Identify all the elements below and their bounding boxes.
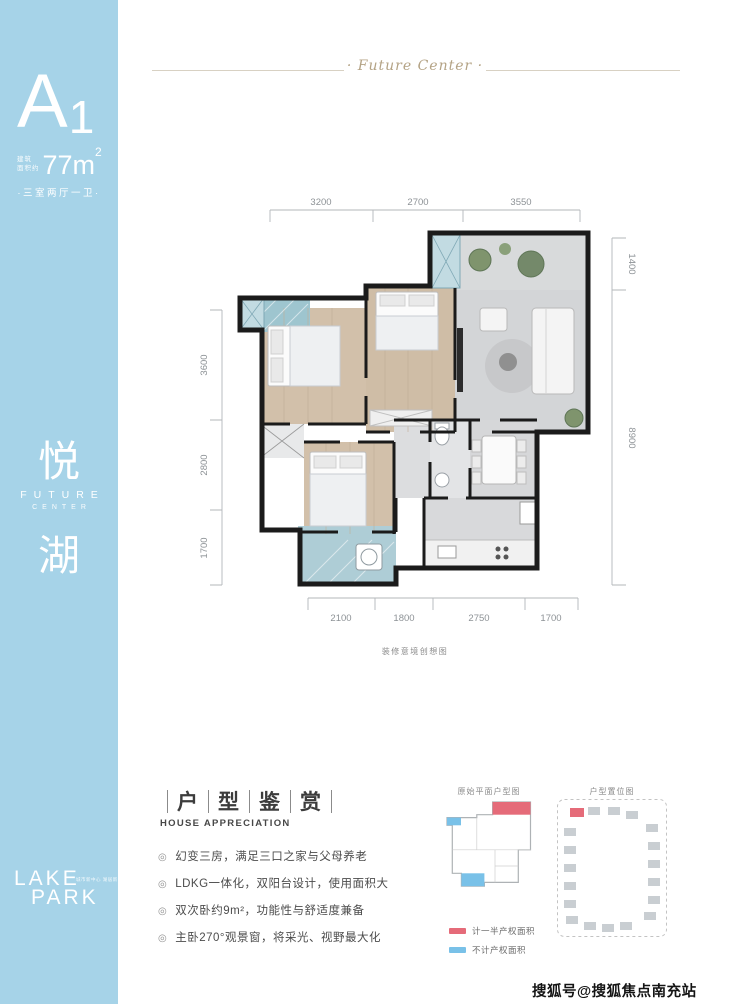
excluded-area-region: [461, 873, 484, 886]
area-prefix-line1: 建筑: [17, 156, 40, 165]
kitchen-sink: [438, 546, 456, 558]
feature-list: ◎ 幻变三房，满足三口之家与父母养老 ◎ LDKG一体化，双阳台设计，使用面积大…: [158, 851, 389, 960]
unit-position-label: 户型置位图: [562, 786, 662, 797]
pillow: [340, 456, 362, 468]
pillow: [271, 358, 283, 382]
logo-tagline: 城市新中心 湖居新未来: [76, 878, 128, 883]
dim-bottom-2: 1800: [393, 613, 414, 624]
dim-bottom-3: 2750: [468, 613, 489, 624]
title-divider-bar: [290, 790, 291, 813]
excluded-area-region: [447, 818, 461, 826]
unit-number: 1: [69, 94, 95, 140]
dim-left-3: 1700: [199, 537, 210, 558]
title-char-3: 鉴: [259, 786, 281, 816]
lake-park-logo: LAKE PARK 城市新中心 湖居新未来: [14, 868, 99, 908]
chair: [517, 440, 526, 452]
floorplan-drawing: 3200 2700 3550 2100 1800 2750 1700 3600 …: [180, 180, 650, 640]
brand-char-top: 悦: [0, 428, 118, 489]
armchair: [480, 308, 507, 331]
blue-swatch: [449, 947, 466, 953]
dim-left-2: 2800: [199, 454, 210, 475]
bullet-icon: ◎: [158, 933, 167, 944]
pillow: [271, 330, 283, 354]
dim-left-1: 3600: [199, 354, 210, 375]
title-char-2: 型: [218, 786, 240, 816]
logo-park: PARK: [31, 887, 99, 908]
area-number: 77m: [43, 150, 96, 180]
dining-table: [482, 436, 516, 484]
blanket: [376, 316, 438, 350]
feature-item: ◎ 幻变三房，满足三口之家与父母养老: [158, 851, 389, 864]
feature-item: ◎ LDKG一体化，双阳台设计，使用面积大: [158, 878, 389, 891]
pillow: [380, 295, 405, 306]
title-divider-bar: [249, 790, 250, 813]
original-plan-diagram: [445, 800, 537, 896]
dim-top-1: 3200: [310, 197, 331, 208]
legend-label: 不计产权面积: [472, 944, 526, 956]
legend-row-half-area: 计一半产权面积: [449, 925, 535, 937]
appreciation-subtitle: HOUSE APPRECIATION: [160, 818, 291, 829]
plant-icon: [518, 251, 544, 277]
header-rule-left: [152, 70, 344, 71]
title-divider-bar: [331, 790, 332, 813]
chair: [472, 472, 481, 484]
feature-text: 主卧270°观景窗，将采光、视野最大化: [175, 932, 381, 945]
coffee-table: [499, 353, 517, 371]
brand-char-bottom: 湖: [0, 522, 118, 583]
dim-right-2: 8900: [626, 427, 637, 448]
floorplan-caption: 装修意境创想图: [180, 646, 650, 657]
sofa: [532, 308, 574, 394]
header-rule-right: [486, 70, 680, 71]
fridge: [520, 502, 535, 524]
feature-text: 幻变三房，满足三口之家与父母养老: [175, 851, 367, 864]
unit-layout-label: ·三室两厅一卫·: [0, 185, 118, 199]
unit-area: 建筑 面积约 77m2: [17, 147, 102, 177]
unit-position-diagram: [556, 798, 668, 938]
feature-text: 双次卧约9m²，功能性与舒适度兼备: [175, 905, 364, 918]
half-area-region: [493, 802, 531, 815]
pillow: [409, 295, 434, 306]
watermark: 搜狐号@搜狐焦点南充站: [532, 980, 697, 1001]
title-char-1: 户: [177, 786, 199, 816]
original-plan-label: 原始平面户型图: [441, 786, 537, 797]
plant-icon: [499, 243, 511, 255]
chair: [517, 472, 526, 484]
area-prefix-line2: 面积约: [17, 165, 40, 174]
bath-sink: [435, 473, 449, 487]
unit-letter: A: [17, 64, 68, 140]
dim-top-3: 3550: [510, 197, 531, 208]
bullet-icon: ◎: [158, 852, 167, 863]
unit-code: A 1: [17, 64, 94, 140]
brand-en-future: FUTURE: [0, 489, 118, 501]
bullet-icon: ◎: [158, 879, 167, 890]
highlighted-unit: [570, 808, 584, 817]
area-value: 77m2: [43, 147, 102, 177]
legend-label: 计一半产权面积: [472, 925, 535, 937]
toilet: [435, 427, 449, 445]
chair: [517, 456, 526, 468]
title-char-4: 赏: [300, 786, 322, 816]
dim-right-1: 1400: [626, 253, 637, 274]
area-prefix-label: 建筑 面积约: [17, 156, 40, 174]
feature-item: ◎ 双次卧约9m²，功能性与舒适度兼备: [158, 905, 389, 918]
legend-row-excluded-area: 不计产权面积: [449, 944, 535, 956]
pillow: [314, 456, 336, 468]
dim-bottom-4: 1700: [540, 613, 561, 624]
area-superscript: 2: [95, 145, 102, 159]
feature-text: LDKG一体化，双阳台设计，使用面积大: [175, 878, 388, 891]
appreciation-title: 户 型 鉴 赏: [158, 786, 341, 816]
feature-item: ◎ 主卧270°观景窗，将采光、视野最大化: [158, 932, 389, 945]
red-swatch: [449, 928, 466, 934]
dim-top-2: 2700: [407, 197, 428, 208]
chair: [472, 456, 481, 468]
dim-bottom-1: 2100: [330, 613, 351, 624]
plant-icon: [565, 409, 583, 427]
bullet-icon: ◎: [158, 906, 167, 917]
blanket: [310, 474, 366, 526]
sidebar: A 1 建筑 面积约 77m2 ·三室两厅一卫· 悦 FUTURE CENTER…: [0, 0, 118, 1004]
plant-icon: [469, 249, 491, 271]
page: A 1 建筑 面积约 77m2 ·三室两厅一卫· 悦 FUTURE CENTER…: [0, 0, 740, 1004]
title-divider-bar: [167, 790, 168, 813]
tv-console: [457, 328, 463, 392]
blanket: [290, 326, 340, 386]
brand-en-center: CENTER: [0, 504, 118, 511]
legend: 计一半产权面积 不计产权面积: [449, 925, 535, 963]
title-divider-bar: [208, 790, 209, 813]
washing-machine: [356, 544, 382, 570]
header-script-title: · Future Center ·: [340, 58, 490, 74]
chair: [472, 440, 481, 452]
